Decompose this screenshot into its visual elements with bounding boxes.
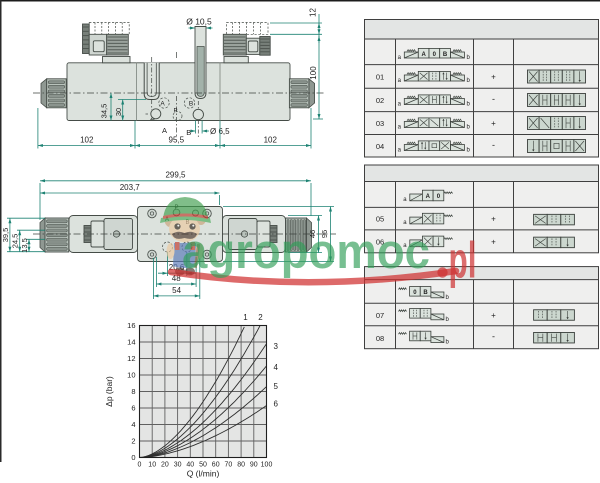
svg-text:0: 0	[131, 453, 135, 462]
svg-text:agropomoc: agropomoc	[182, 225, 430, 279]
svg-text:6: 6	[274, 400, 279, 409]
svg-text:13,5: 13,5	[20, 238, 29, 253]
svg-text:24,5: 24,5	[11, 234, 20, 249]
svg-text:90: 90	[250, 462, 258, 469]
svg-text:54: 54	[172, 286, 181, 295]
svg-text:100: 100	[309, 66, 318, 80]
svg-text:0: 0	[138, 462, 142, 469]
svg-text:A: A	[426, 194, 431, 200]
svg-text:10: 10	[148, 462, 156, 469]
svg-text:-: -	[492, 332, 495, 342]
svg-text:12: 12	[127, 354, 135, 363]
svg-text:1: 1	[243, 313, 248, 322]
svg-text:39,5: 39,5	[1, 228, 10, 243]
svg-text:+: +	[491, 73, 496, 82]
svg-text:B: B	[423, 290, 428, 296]
svg-text:A: A	[162, 126, 167, 135]
svg-text:102: 102	[264, 135, 278, 144]
svg-text:34,5: 34,5	[99, 104, 108, 119]
svg-text:Δp (bar): Δp (bar)	[104, 376, 114, 407]
svg-text:-: -	[492, 94, 495, 104]
svg-text:+: +	[491, 215, 496, 224]
svg-text:10: 10	[127, 371, 135, 380]
svg-text:pl: pl	[449, 232, 477, 289]
svg-text:A: A	[160, 101, 165, 108]
svg-text:70: 70	[225, 462, 233, 469]
svg-text:60: 60	[212, 462, 220, 469]
svg-text:2: 2	[258, 313, 263, 322]
svg-text:B: B	[189, 101, 193, 108]
svg-text:02: 02	[376, 96, 384, 105]
svg-text:95,5: 95,5	[169, 135, 185, 144]
svg-text:B: B	[186, 128, 191, 137]
svg-text:Q (l/min): Q (l/min)	[187, 469, 220, 479]
svg-text:40: 40	[186, 462, 194, 469]
svg-text:203,7: 203,7	[120, 183, 141, 192]
svg-text:08: 08	[376, 334, 384, 343]
svg-text:4: 4	[274, 363, 279, 372]
svg-text:5: 5	[274, 382, 279, 391]
svg-text:+: +	[491, 238, 496, 247]
svg-text:30: 30	[174, 462, 182, 469]
svg-text:A: A	[421, 52, 426, 58]
svg-text:07: 07	[376, 311, 384, 320]
svg-text:14: 14	[127, 338, 135, 347]
svg-text:01: 01	[376, 73, 384, 82]
svg-text:2: 2	[131, 437, 135, 446]
svg-text:80: 80	[237, 462, 245, 469]
svg-text:102: 102	[80, 135, 94, 144]
svg-text:05: 05	[376, 215, 384, 224]
svg-text:4: 4	[131, 420, 135, 429]
svg-text:+: +	[491, 311, 496, 320]
svg-text:+: +	[491, 119, 496, 128]
svg-text:3: 3	[274, 342, 279, 351]
svg-text:-: -	[492, 140, 495, 150]
svg-text:30: 30	[114, 108, 123, 116]
svg-text:100: 100	[261, 462, 273, 469]
svg-text:12: 12	[309, 8, 318, 17]
svg-text:Ø 10,5: Ø 10,5	[186, 17, 212, 27]
svg-text:299,5: 299,5	[165, 171, 186, 180]
svg-text:20: 20	[161, 462, 169, 469]
svg-text:16: 16	[127, 321, 135, 330]
svg-text:50: 50	[199, 462, 207, 469]
svg-text:03: 03	[376, 119, 384, 128]
svg-text:04: 04	[376, 142, 384, 151]
svg-text:6: 6	[131, 404, 135, 413]
svg-text:B: B	[443, 52, 448, 58]
svg-text:8: 8	[131, 387, 135, 396]
